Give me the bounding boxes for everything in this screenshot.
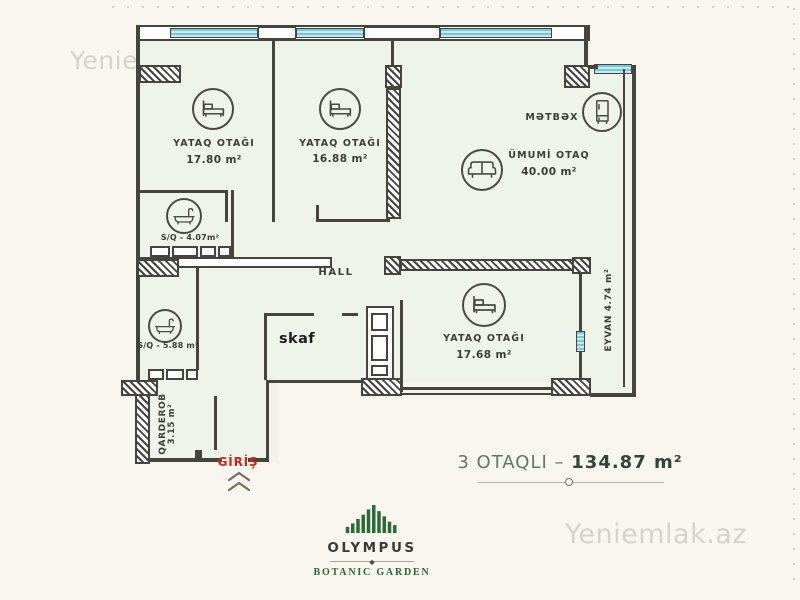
- wall-segment: [584, 25, 588, 69]
- hatched-wall: [135, 394, 150, 464]
- window: [296, 28, 364, 38]
- floor-plan-page: Yeniemlak.az Yeniemlak.az Yeniemlak.az: [0, 0, 800, 600]
- duct-shaft-cell: [371, 335, 388, 361]
- balcony-door-window: [576, 331, 585, 352]
- wall-segment: [316, 205, 319, 222]
- hatched-wall: [385, 65, 402, 88]
- bedroom2-area: 16.88 m²: [280, 153, 400, 165]
- exterior-wall-top: [138, 25, 590, 41]
- bathroom-small-area: 4.07m²: [186, 233, 219, 242]
- wall-segment: [269, 380, 366, 383]
- window: [170, 28, 258, 38]
- wall-segment: [342, 313, 358, 316]
- hatched-wall: [400, 259, 574, 271]
- living-room-label: ÜMUMİ OTAQ: [489, 151, 609, 162]
- kitchen-label: MƏTBƏX: [502, 113, 602, 124]
- shelf: [200, 246, 216, 257]
- summary-area: 134.87 m²: [571, 452, 682, 473]
- wardrobe-area: 3.15 m²: [168, 380, 178, 468]
- bathroom-small-prefix: S/Q -: [161, 233, 184, 242]
- hall-label: HALL: [296, 267, 376, 279]
- wall-segment: [316, 219, 390, 222]
- shelf: [186, 369, 198, 380]
- bathroom-large-area: 5.88 m²: [163, 341, 199, 350]
- wall-segment: [391, 41, 394, 67]
- wardrobe-label: QARDEROB 3.15 m²: [158, 380, 184, 468]
- bedroom1-label: YATAQ OTAĞI: [154, 139, 274, 150]
- wall-segment: [272, 41, 275, 222]
- hatched-wall: [384, 256, 401, 275]
- wall-segment: [264, 313, 314, 316]
- hatched-wall: [137, 259, 179, 277]
- kitchen-window: [594, 64, 632, 74]
- dotted-border-right: [793, 8, 795, 583]
- floor-area: [138, 27, 590, 382]
- wall-segment: [266, 380, 269, 462]
- wall-segment: [402, 393, 554, 395]
- closet-label: skaf: [265, 331, 329, 348]
- hatched-wall: [564, 65, 590, 88]
- shelf: [148, 369, 164, 380]
- bathtub-icon: [148, 309, 182, 343]
- dotted-border-top: [112, 6, 794, 8]
- shelf: [166, 369, 184, 380]
- wall-pier: [258, 27, 296, 39]
- hatched-wall: [139, 65, 181, 83]
- wall-segment: [402, 387, 554, 390]
- bathroom-small-label: S/Q - 4.07m²: [134, 233, 246, 242]
- logo-divider: [330, 559, 414, 564]
- wall-segment: [590, 393, 636, 397]
- wall-segment: [140, 190, 228, 193]
- bedroom3-label: YATAQ OTAĞI: [424, 334, 544, 345]
- wall-segment: [579, 271, 582, 331]
- wall-segment: [225, 190, 228, 222]
- hatched-wall: [361, 378, 402, 396]
- duct-shaft-cell: [371, 365, 388, 376]
- logo-subtitle: BOTANIC GARDEN: [302, 567, 442, 578]
- living-room-area: 40.00 m²: [489, 166, 609, 178]
- logo-mountain-icon: [344, 503, 400, 535]
- wall-pier: [364, 27, 440, 39]
- hatched-wall: [572, 257, 591, 274]
- summary-divider-ring: [565, 478, 573, 486]
- shelf: [172, 246, 198, 257]
- bedroom3-area: 17.68 m²: [424, 349, 544, 361]
- wall-segment: [231, 190, 234, 260]
- balcony-label: EYVAN 4.74 m²: [604, 260, 618, 360]
- developer-logo: OLYMPUS BOTANIC GARDEN: [302, 503, 442, 578]
- bed-icon: [192, 88, 234, 130]
- hatched-wall: [121, 380, 158, 396]
- bed-icon: [319, 88, 361, 130]
- wall-segment: [632, 65, 636, 397]
- wall-inner-line: [623, 69, 625, 387]
- bedroom1-area: 17.80 m²: [154, 154, 274, 166]
- duct-shaft-cell: [371, 313, 388, 331]
- logo-diamond-icon: [370, 559, 375, 564]
- apartment-summary: 3 OTAQLI – 134.87 m²: [455, 452, 685, 473]
- wall-segment: [196, 267, 199, 370]
- bedroom2-label: YATAQ OTAĞI: [280, 139, 400, 150]
- watermark-bottom-right: Yeniemlak.az: [565, 519, 747, 550]
- window: [440, 28, 552, 38]
- wall-segment: [214, 396, 217, 450]
- summary-rooms: 3 OTAQLI –: [457, 452, 564, 473]
- hatched-wall: [551, 378, 591, 396]
- fridge-icon: [582, 92, 622, 132]
- logo-title: OLYMPUS: [302, 540, 442, 556]
- entrance-arrow-icon: [226, 471, 252, 496]
- bed-icon: [462, 283, 506, 327]
- bathroom-large-label: S/Q - 5.88 m²: [112, 341, 224, 350]
- bathtub-icon: [166, 198, 202, 234]
- entrance-label: GİRİŞ: [198, 456, 278, 470]
- bathroom-large-prefix: S/Q -: [137, 341, 160, 350]
- shelf: [150, 246, 170, 257]
- shelf: [218, 246, 231, 257]
